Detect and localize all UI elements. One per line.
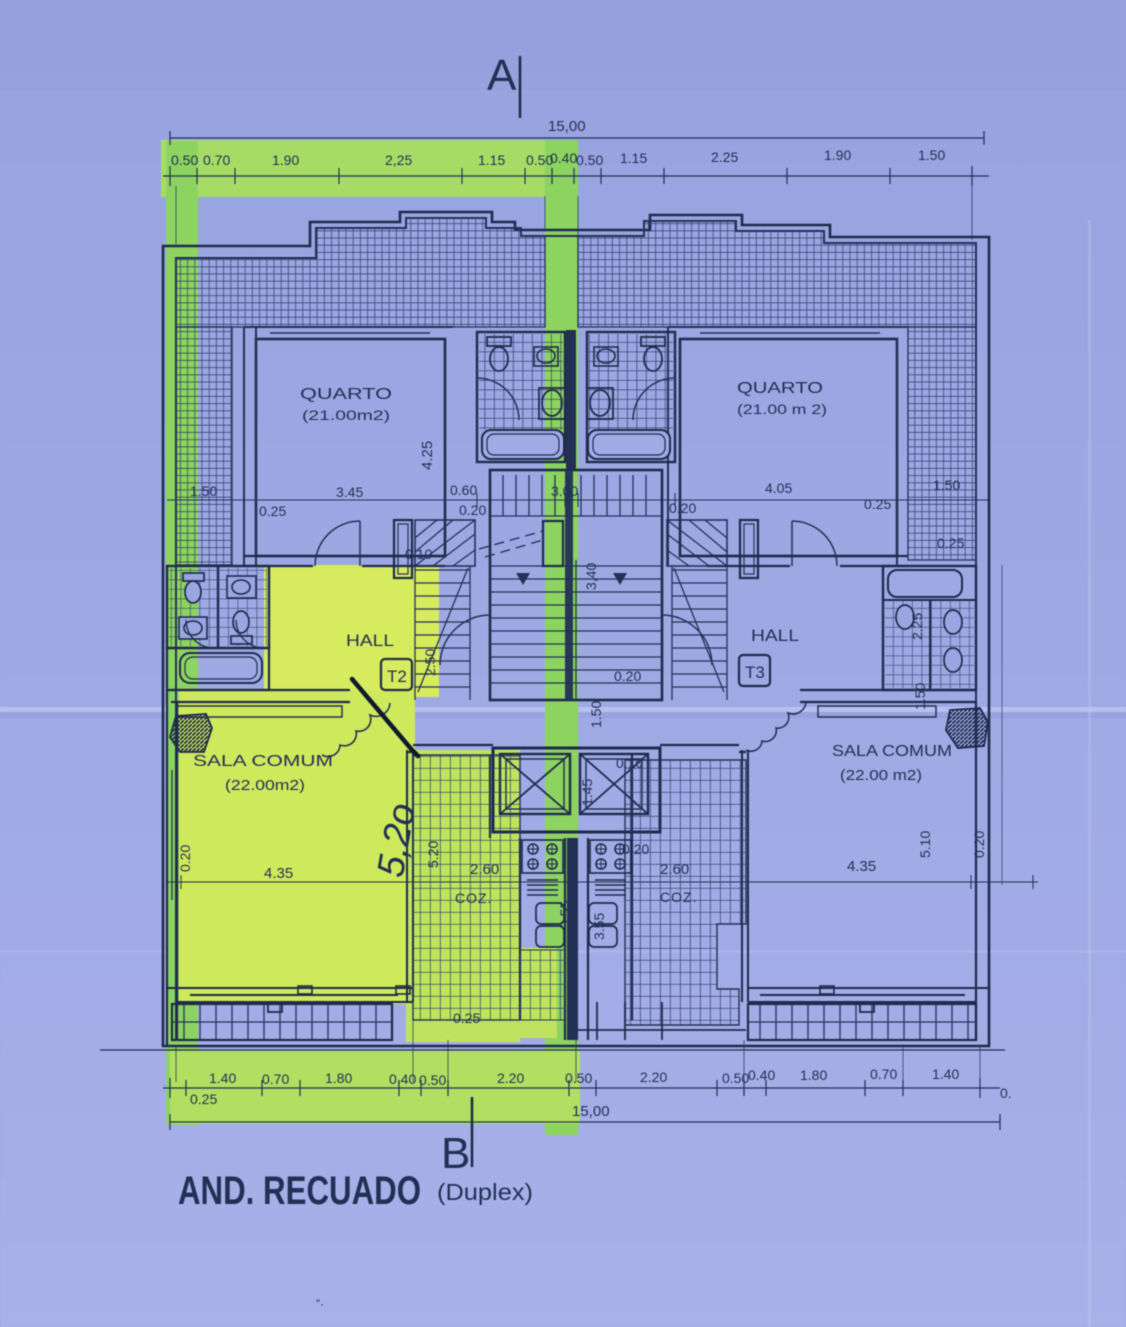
svg-text:0.40: 0.40 [550,150,577,166]
svg-text:4.05: 4.05 [765,480,792,496]
svg-text:AND. RECUADO: AND. RECUADO [178,1169,421,1213]
svg-text:0.40: 0.40 [389,1071,416,1087]
svg-text:0.20: 0.20 [669,500,696,516]
svg-text:0.50: 0.50 [722,1070,749,1086]
svg-text:0.: 0. [1000,1085,1012,1101]
svg-text:1.80: 1.80 [325,1070,352,1086]
svg-text:SALA COMUM: SALA COMUM [832,743,952,760]
svg-text:2.25: 2.25 [711,149,738,165]
svg-text:”·: ”· [316,1297,324,1311]
svg-text:1.90: 1.90 [824,147,851,163]
svg-text:0.20: 0.20 [177,845,193,872]
svg-text:1.90: 1.90 [272,152,299,168]
svg-text:2.20: 2.20 [640,1069,667,1085]
svg-text:2.60: 2.60 [470,861,499,878]
svg-text:QUARTO: QUARTO [300,386,392,403]
svg-text:5.10: 5.10 [917,831,933,858]
svg-text:2.60: 2.60 [660,861,689,878]
svg-text:QUARTO: QUARTO [737,380,823,397]
svg-text:(Duplex): (Duplex) [437,1179,533,1205]
svg-text:0.20: 0.20 [459,502,486,518]
svg-text:0.25: 0.25 [190,1091,217,1107]
svg-text:0.20: 0.20 [622,841,649,857]
svg-text:0.60: 0.60 [450,482,477,498]
svg-text:(21.00m2): (21.00m2) [302,407,390,423]
svg-text:0.70: 0.70 [203,152,230,168]
svg-text:0.50: 0.50 [565,1070,592,1086]
svg-text:HALL: HALL [751,626,799,645]
svg-text:(21.00 m 2): (21.00 m 2) [737,401,827,417]
svg-text:0.25: 0.25 [937,535,964,551]
svg-text:1.80: 1.80 [800,1067,827,1083]
svg-text:COZ.: COZ. [455,890,492,906]
svg-text:1.50: 1.50 [918,147,945,163]
svg-text:1.50: 1.50 [588,701,604,728]
svg-text:2.20: 2.20 [497,1070,524,1086]
svg-text:1.45: 1.45 [579,779,595,806]
svg-text:1.40: 1.40 [209,1070,236,1086]
svg-text:15,00: 15,00 [572,1103,610,1120]
svg-text:1.40: 1.40 [932,1066,959,1082]
svg-text:4.25: 4.25 [419,441,436,470]
svg-text:COZ.: COZ. [660,889,697,905]
svg-text:(22.00m2): (22.00m2) [225,777,305,794]
svg-text:HALL: HALL [346,631,394,650]
svg-text:A: A [487,51,517,100]
svg-text:0.50: 0.50 [419,1072,446,1088]
svg-text:4.35: 4.35 [847,858,876,875]
svg-text:B: B [441,1129,470,1178]
svg-text:0.70: 0.70 [262,1071,289,1087]
svg-text:0.20: 0.20 [614,668,641,684]
svg-text:2,25: 2,25 [385,152,412,168]
svg-text:0.25: 0.25 [864,496,891,512]
svg-text:2.25: 2.25 [909,613,925,640]
svg-text:4.35: 4.35 [264,865,293,882]
svg-text:1.50: 1.50 [933,477,960,493]
svg-text:T2: T2 [387,667,407,686]
svg-text:3.55: 3.55 [591,913,607,940]
svg-text:1.15: 1.15 [478,152,505,168]
svg-text:0.25: 0.25 [453,1010,480,1026]
svg-text:1.15: 1.15 [620,150,647,166]
svg-text:(22.00 m2): (22.00 m2) [840,767,922,784]
svg-text:0.50: 0.50 [576,152,603,168]
svg-text:15,00: 15,00 [548,118,586,135]
svg-text:0.50: 0.50 [171,152,198,168]
svg-text:3.45: 3.45 [336,484,363,500]
svg-text:5.20: 5.20 [425,841,441,868]
svg-text:SALA COMUM: SALA COMUM [193,753,333,770]
svg-text:0.25: 0.25 [259,503,286,519]
svg-text:3,40: 3,40 [583,563,599,590]
svg-text:0.20: 0.20 [971,831,987,858]
svg-text:1.50: 1.50 [190,483,217,499]
svg-text:T3: T3 [745,663,765,682]
svg-text:0.70: 0.70 [870,1066,897,1082]
svg-text:0.40: 0.40 [748,1067,775,1083]
